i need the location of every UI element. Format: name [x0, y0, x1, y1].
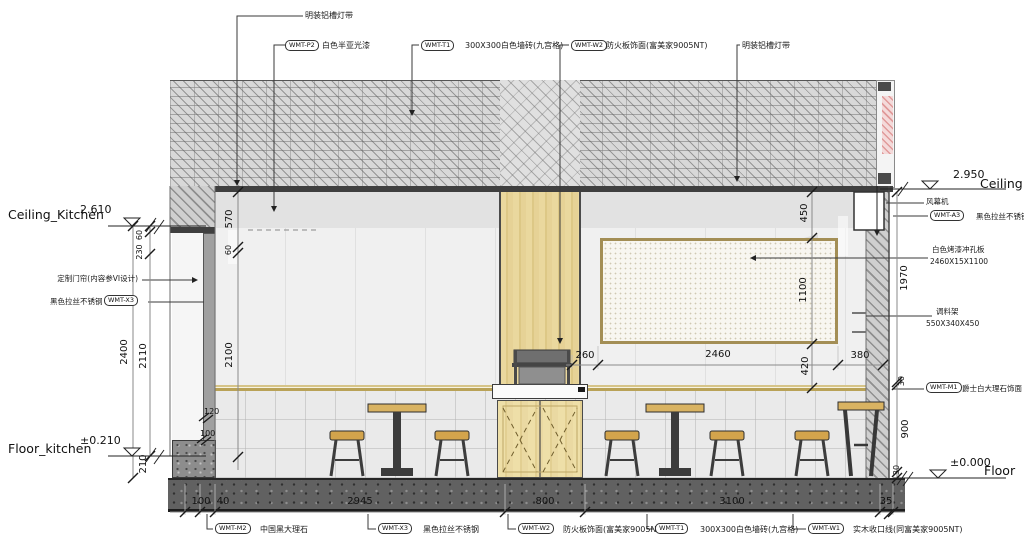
material-tag-p2: WMT-P2: [285, 40, 319, 51]
callout-air-curtain: 风幕机: [926, 196, 949, 207]
dim-2400: 2400: [119, 330, 133, 374]
level-value-floor-kitchen: ±0.210: [80, 434, 121, 447]
callout-white-marble: 爵士白大理石饰面: [962, 383, 1022, 394]
dim-bottom-35: 35: [872, 496, 900, 507]
callout-stainless-right: 黑色拉丝不锈钢: [976, 211, 1024, 222]
callout-light-strip-left: 明装铝槽灯带: [305, 10, 353, 21]
dim-bottom-40: 40: [208, 496, 238, 507]
dim-mid-260: 260: [567, 350, 603, 361]
callout-wall-tile-bottom: 300X300白色墙砖(九宫格): [700, 524, 798, 535]
callout-wall-tile-top: 300X300白色墙砖(九宫格): [465, 40, 563, 51]
dim-2100: 2100: [224, 333, 238, 377]
drawing-linework: [0, 0, 1024, 549]
dim-bottom-2945: 2945: [336, 496, 384, 507]
dim-1100: 1100: [798, 268, 812, 312]
level-label-floor: Floor: [984, 463, 1015, 478]
material-tag-x3-left: WMT-X3: [104, 295, 138, 306]
leader-arrows: [192, 110, 756, 344]
elevation-drawing: 明装铝槽灯带 WMT-P2 白色半亚光漆 WMT-T1 300X300白色墙砖(…: [0, 0, 1024, 549]
callout-spice-rack-1: 调料架: [936, 306, 959, 317]
callout-light-strip-right: 明装铝槽灯带: [742, 40, 790, 51]
callout-white-paint: 白色半亚光漆: [322, 40, 370, 51]
material-tag-a3: WMT-A3: [930, 210, 964, 221]
dim-900: 900: [900, 407, 914, 451]
dim-450: 450: [799, 191, 813, 235]
callout-perforated-panel-1: 白色烤漆冲孔板: [932, 244, 985, 255]
level-value-ceiling-kitchen: 2.610: [80, 203, 112, 216]
dim-230: 230: [135, 230, 149, 274]
callout-stainless-left: 黑色拉丝不锈钢: [50, 296, 103, 307]
material-tag-x3-bottom: WMT-X3: [378, 523, 412, 534]
callout-wood-edge: 实木收口线(同富美家9005NT): [853, 524, 962, 535]
callout-black-marble: 中国黑大理石: [260, 524, 308, 535]
callout-fire-board-top: 防火板饰面(富美家9005NT): [606, 40, 707, 51]
material-tag-w1: WMT-W1: [808, 523, 844, 534]
material-tag-t1-top: WMT-T1: [421, 40, 454, 51]
material-tag-w2-bottom: WMT-W2: [518, 523, 554, 534]
material-tag-m2: WMT-M2: [215, 523, 251, 534]
dim-bottom-3100: 3100: [708, 496, 756, 507]
level-label-ceiling: Ceiling: [980, 176, 1023, 191]
callout-perforated-panel-2: 2460X15X1100: [930, 257, 988, 266]
callout-fire-board-bottom: 防火板饰面(富美家9005NT): [563, 524, 664, 535]
dim-mid-2460: 2460: [694, 349, 742, 360]
material-tag-w2-top: WMT-W2: [571, 40, 607, 51]
high-table: [838, 402, 884, 476]
level-label-floor-kitchen: Floor_kitchen: [8, 441, 91, 456]
callout-curtain: 定制门帘(内容参VI设计): [30, 273, 138, 284]
cabinet-door-swings: [503, 400, 577, 478]
dim-210: 210: [138, 442, 152, 486]
bar-table-1: [368, 404, 426, 476]
dim-mid-380: 380: [842, 350, 878, 361]
air-curtain-unit: [854, 186, 884, 236]
dim-30b: 30: [892, 448, 906, 492]
dim-100b: 100: [200, 429, 215, 438]
callout-spice-rack-2: 550X340X450: [926, 319, 979, 328]
dim-420: 420: [800, 344, 814, 388]
spice-rack: [852, 313, 866, 332]
bar-table-2: [646, 404, 704, 476]
dim-30a: 30: [897, 359, 911, 403]
dim-bottom-800: 800: [521, 496, 569, 507]
dim-2110: 2110: [138, 334, 152, 378]
leader-lines: [142, 16, 932, 529]
material-tag-t1-bottom: WMT-T1: [655, 523, 688, 534]
dim-1970: 1970: [899, 256, 913, 300]
dim-60b: 60: [224, 228, 238, 272]
callout-stainless-bottom: 黑色拉丝不锈钢: [423, 524, 479, 535]
material-tag-m1: WMT-M1: [926, 382, 962, 393]
dim-120: 120: [204, 407, 219, 416]
